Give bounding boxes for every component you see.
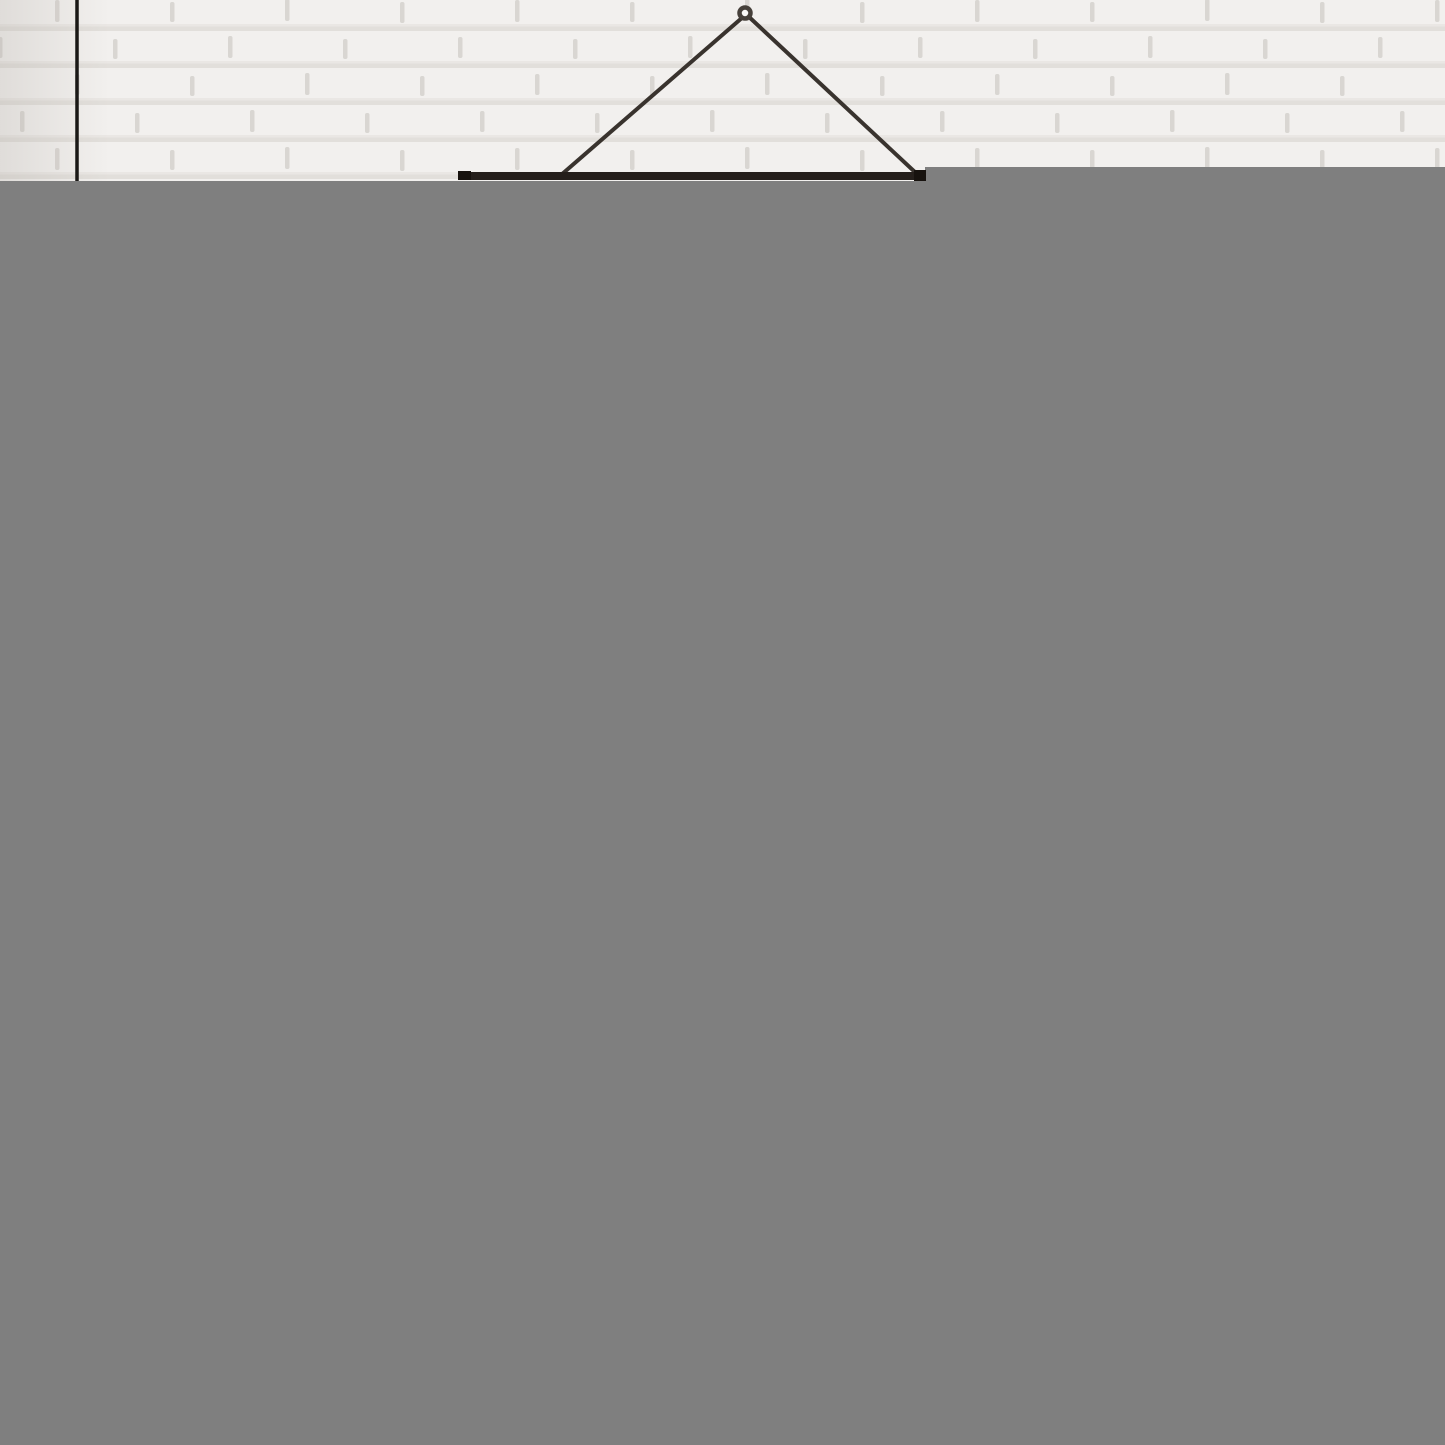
wall-left-shade [0,0,110,181]
partially-loaded-photo [0,0,1445,1445]
hanger-bar-left-cap [458,171,471,180]
hanger-bar [458,172,926,180]
photo-svg [0,0,1445,1445]
hanger-ring [740,8,751,19]
brick-wall [0,0,1445,181]
gray-placeholder-block [0,0,1445,1445]
hanger-bar-right-cap [914,170,926,181]
